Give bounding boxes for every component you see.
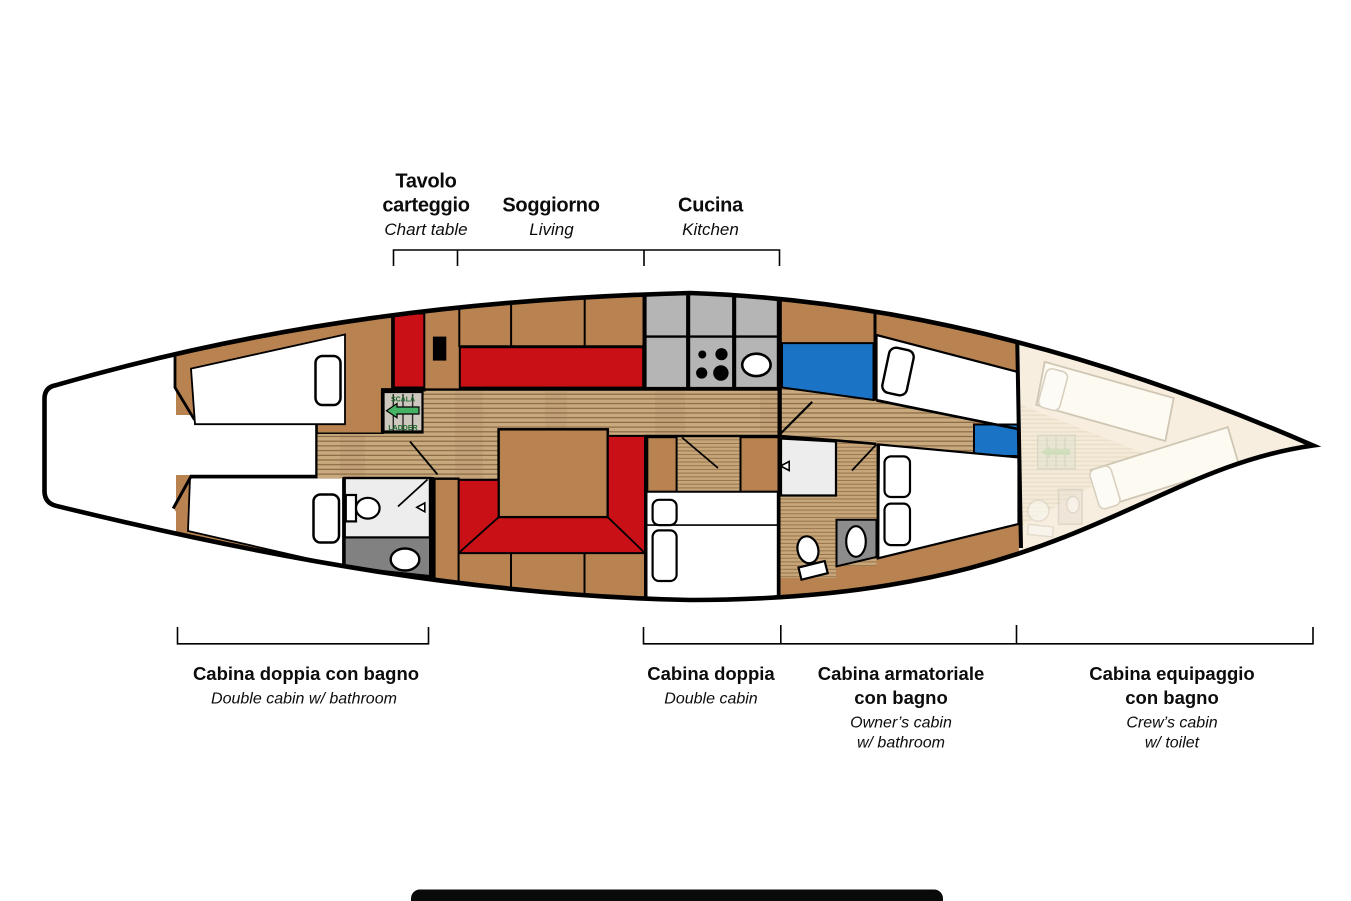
svg-text:LADDER: LADDER: [388, 425, 417, 432]
svg-text:Kitchen: Kitchen: [682, 220, 739, 239]
svg-text:Cabina equipaggio: Cabina equipaggio: [1089, 663, 1254, 684]
svg-text:Double cabin: Double cabin: [664, 691, 758, 708]
svg-text:w/ toilet: w/ toilet: [1145, 735, 1200, 752]
svg-text:Cabina doppia: Cabina doppia: [647, 663, 775, 684]
svg-text:Crew’s cabin: Crew’s cabin: [1126, 715, 1217, 732]
svg-text:w/ bathroom: w/ bathroom: [857, 735, 945, 752]
svg-text:SCALA: SCALA: [391, 397, 415, 404]
svg-text:carteggio: carteggio: [382, 195, 469, 217]
svg-text:Cabina armatoriale: Cabina armatoriale: [818, 663, 985, 684]
svg-text:con bagno: con bagno: [854, 687, 948, 708]
svg-text:Chart table: Chart table: [384, 220, 467, 239]
svg-text:Tavolo: Tavolo: [395, 171, 456, 193]
svg-text:Soggiorno: Soggiorno: [502, 195, 599, 217]
svg-text:Double cabin w/ bathroom: Double cabin w/ bathroom: [211, 691, 397, 708]
svg-text:Cabina doppia con bagno: Cabina doppia con bagno: [193, 663, 419, 684]
svg-text:Owner’s cabin: Owner’s cabin: [850, 715, 952, 732]
svg-text:Living: Living: [529, 220, 574, 239]
svg-text:con bagno: con bagno: [1125, 687, 1219, 708]
svg-text:Cucina: Cucina: [678, 195, 744, 217]
